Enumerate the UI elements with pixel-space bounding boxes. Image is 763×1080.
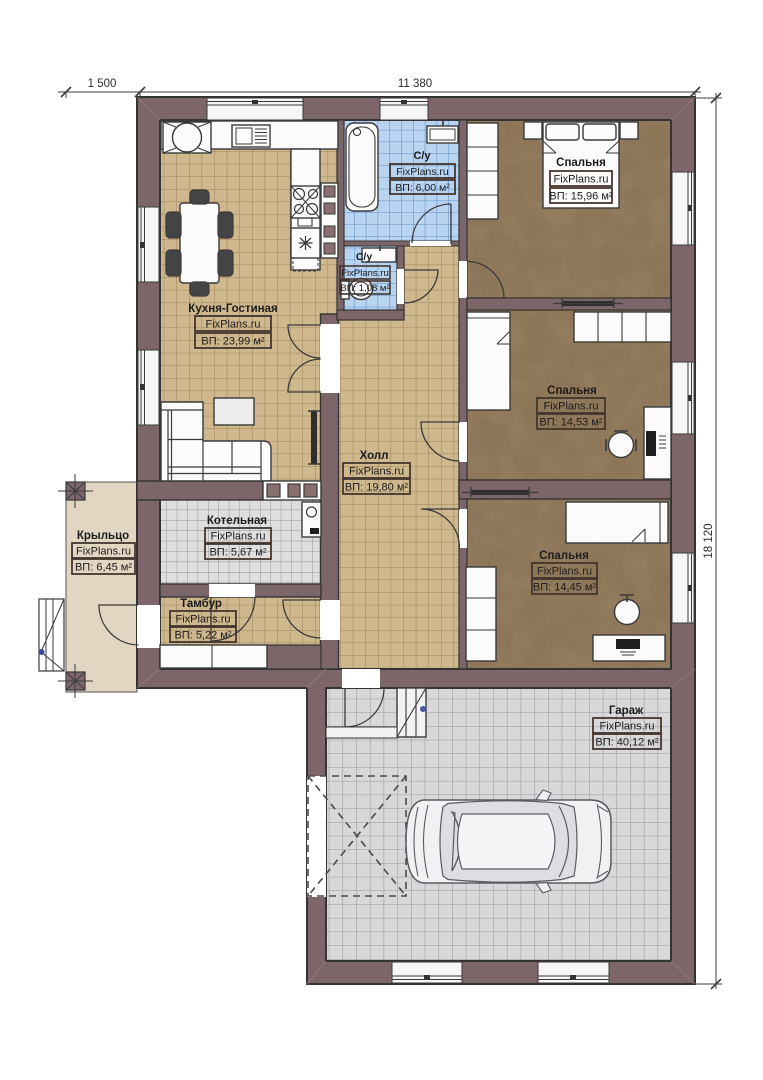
svg-text:ВП: 5,67 м²: ВП: 5,67 м² — [209, 547, 266, 559]
svg-text:FixPlans.ru: FixPlans.ru — [537, 566, 592, 578]
svg-text:FixPlans.ru: FixPlans.ru — [349, 466, 404, 478]
svg-text:1 500: 1 500 — [88, 78, 117, 90]
svg-text:Тамбур: Тамбур — [180, 598, 222, 610]
svg-text:ВП: 5,22 м²: ВП: 5,22 м² — [174, 630, 231, 642]
svg-text:Кухня-Гостиная: Кухня-Гостиная — [188, 303, 277, 315]
svg-text:FixPlans.ru: FixPlans.ru — [205, 319, 260, 331]
svg-text:ВП: 23,99 м²: ВП: 23,99 м² — [201, 336, 265, 348]
svg-text:Холл: Холл — [360, 450, 389, 462]
svg-text:ВП: 14,53 м²: ВП: 14,53 м² — [539, 417, 603, 429]
svg-text:ВП: 14,45 м²: ВП: 14,45 м² — [533, 582, 597, 594]
svg-text:С/у: С/у — [356, 251, 373, 263]
svg-text:ВП: 1,08 м²: ВП: 1,08 м² — [340, 283, 389, 294]
svg-text:С/у: С/у — [413, 150, 431, 162]
svg-text:Спальня: Спальня — [547, 385, 597, 397]
svg-text:ВП: 6,45 м²: ВП: 6,45 м² — [75, 562, 132, 574]
svg-text:FixPlans.ru: FixPlans.ru — [396, 166, 449, 178]
svg-text:Крыльцо: Крыльцо — [77, 530, 129, 542]
svg-text:Спальня: Спальня — [539, 550, 589, 562]
svg-text:FixPlans.ru: FixPlans.ru — [553, 174, 608, 186]
svg-text:Гараж: Гараж — [609, 705, 644, 717]
svg-text:11 380: 11 380 — [398, 78, 432, 90]
svg-text:FixPlans.ru: FixPlans.ru — [76, 546, 131, 558]
svg-text:Спальня: Спальня — [556, 157, 606, 169]
svg-text:18 120: 18 120 — [703, 523, 715, 558]
svg-text:FixPlans.ru: FixPlans.ru — [599, 721, 654, 733]
svg-text:FixPlans.ru: FixPlans.ru — [543, 401, 598, 413]
svg-text:Котельная: Котельная — [207, 515, 267, 527]
svg-text:ВП: 15,96 м²: ВП: 15,96 м² — [549, 191, 613, 203]
svg-text:ВП: 19,80 м²: ВП: 19,80 м² — [345, 482, 409, 494]
svg-text:FixPlans.ru: FixPlans.ru — [341, 268, 389, 279]
svg-text:FixPlans.ru: FixPlans.ru — [210, 531, 265, 543]
svg-text:ВП: 40,12 м²: ВП: 40,12 м² — [595, 737, 659, 749]
svg-text:ВП: 6,00 м²: ВП: 6,00 м² — [395, 182, 450, 194]
svg-text:FixPlans.ru: FixPlans.ru — [175, 614, 230, 626]
